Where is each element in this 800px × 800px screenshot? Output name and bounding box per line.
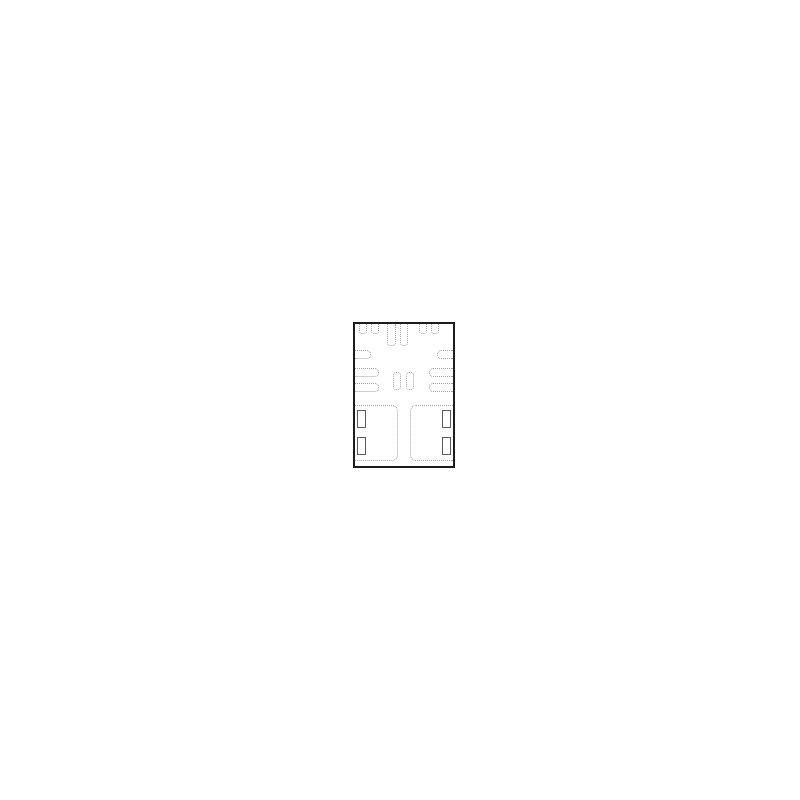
package-outline (353, 322, 455, 468)
top-pad-5 (419, 324, 427, 334)
left-pad-2 (355, 383, 379, 392)
bottom-left-slot-1 (357, 410, 366, 428)
right-corner-tab (437, 350, 453, 359)
top-pad-2 (371, 324, 379, 334)
left-pad-1 (355, 368, 379, 377)
top-pad-3-long (387, 324, 396, 346)
right-pad-1 (429, 368, 453, 377)
bottom-right-slot-1 (442, 410, 451, 428)
center-pad-1 (393, 372, 401, 390)
left-corner-tab (355, 350, 371, 359)
bottom-left-slot-2 (357, 437, 366, 455)
top-pad-1 (359, 324, 367, 334)
top-pad-4-long (400, 324, 408, 346)
bottom-right-slot-2 (442, 437, 451, 455)
center-pad-2 (406, 372, 414, 390)
top-pad-6 (431, 324, 439, 334)
right-pad-2 (429, 383, 453, 392)
canvas (0, 0, 800, 800)
